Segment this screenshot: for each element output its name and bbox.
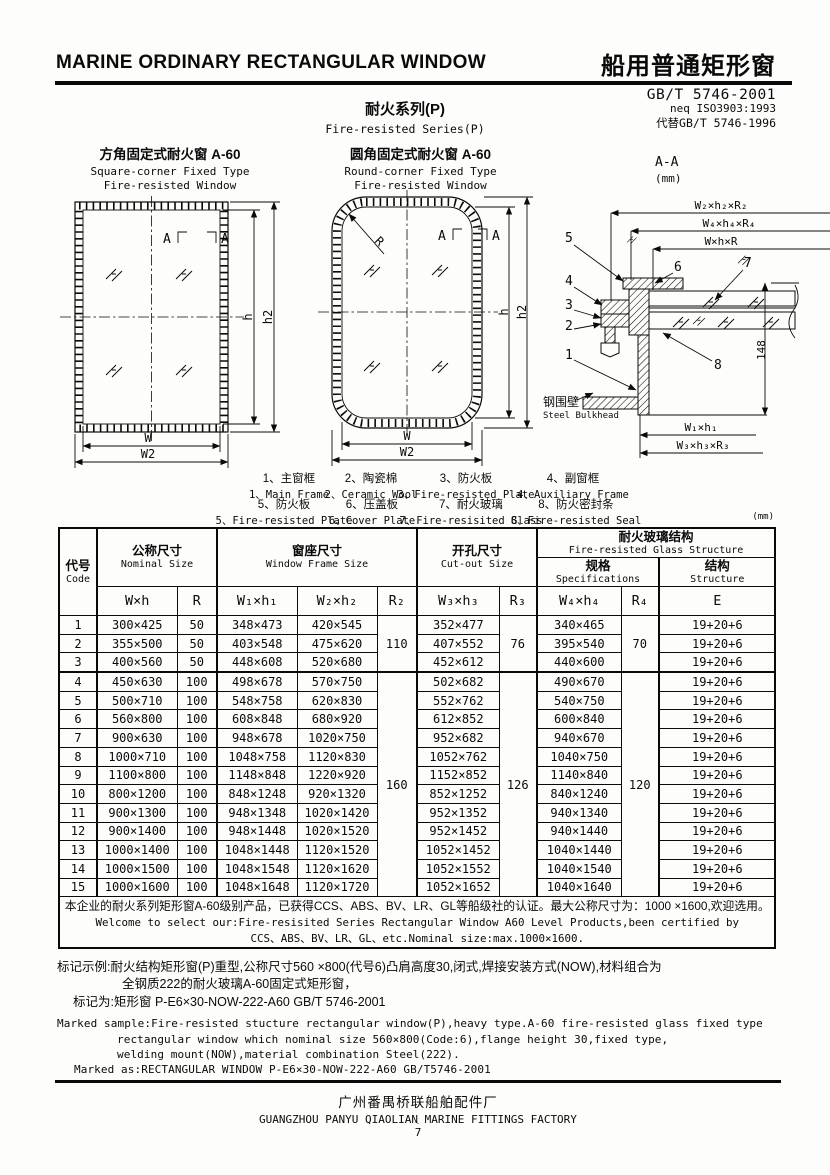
callout-2: 2: [565, 319, 573, 334]
spec-table: 代号 Code 公称尺寸 Nominal Size 窗座尺寸 Window Fr…: [58, 527, 776, 949]
dim-w2-label: W2: [400, 445, 414, 459]
table-cell: 1120×830: [297, 747, 377, 766]
table-cell: 19+20+6: [659, 766, 775, 785]
table-cell: 110: [377, 616, 417, 673]
table-cell: 952×682: [417, 729, 499, 748]
table-cell: 403×548: [217, 634, 297, 653]
dim-w3h3r3: W₃×h₃×R₃: [677, 439, 730, 452]
legend-item-zh: 1、主窗框: [249, 470, 329, 486]
marking-en-line4: Marked as:RECTANGULAR WINDOW P-E6×30-NOW…: [74, 1063, 491, 1076]
th-struct: 结构 Structure: [659, 558, 775, 587]
table-cell: 570×750: [297, 672, 377, 691]
page-number: 7: [55, 1126, 781, 1139]
callout-5: 5: [565, 231, 573, 246]
table-cell: 76: [499, 616, 537, 673]
dim-148: 148: [755, 340, 768, 360]
table-row: 6560×800100608×848680×920612×852600×8401…: [59, 710, 775, 729]
footer-rule: [55, 1080, 781, 1083]
table-cell: 348×473: [217, 616, 297, 635]
table-cell: 19+20+6: [659, 785, 775, 804]
table-cell: 1: [59, 616, 97, 635]
bolt-shaft: [605, 327, 615, 343]
table-cell: 2: [59, 634, 97, 653]
table-row: 12900×1400100948×14481020×1520952×145294…: [59, 822, 775, 841]
table-cell: 300×425: [97, 616, 177, 635]
section-drawing: A-A (mm) W₂×h₂×R₂ W₄×h₄×R₄ W×h×R: [543, 150, 830, 470]
table-cell: 420×545: [297, 616, 377, 635]
bolt-nut: [601, 343, 619, 357]
table-cell: 1000×1500: [97, 859, 177, 878]
table-cell: 400×560: [97, 653, 177, 672]
th-e: E: [659, 587, 775, 616]
table-cell: 19+20+6: [659, 729, 775, 748]
section-mark-a-right: A: [492, 229, 500, 244]
th-cutout: 开孔尺寸 Cut-out Size: [417, 528, 537, 587]
table-cell: 6: [59, 710, 97, 729]
page-title-zh: 船用普通矩形窗: [601, 46, 776, 81]
standard-number: GB/T 5746-2001: [647, 88, 776, 102]
round-window-drawing: R A A W W2 h h2: [322, 190, 552, 486]
dim-w1h1: W₁×h₁: [684, 421, 717, 434]
table-cell: 19+20+6: [659, 634, 775, 653]
table-row: 3400×56050448×608520×680452×612440×60019…: [59, 653, 775, 672]
table-cell: 8: [59, 747, 97, 766]
table-cell: 19+20+6: [659, 616, 775, 635]
table-cell: 100: [177, 710, 217, 729]
th-code: 代号 Code: [59, 528, 97, 616]
square-title-en1: Square-corner Fixed Type: [70, 165, 270, 179]
table-cell: 475×620: [297, 634, 377, 653]
table-cell: 340×465: [537, 616, 621, 635]
callout-7: 7: [744, 256, 752, 271]
th-w4h4: W₄×h₄: [537, 587, 621, 616]
section-mark-a-left: A: [163, 232, 171, 247]
table-cell: 600×840: [537, 710, 621, 729]
table-cell: 13: [59, 841, 97, 860]
marking-en-line2: rectangular window which nominal size 56…: [117, 1033, 668, 1046]
table-cell: 4: [59, 672, 97, 691]
square-title-en2: Fire-resisted Window: [70, 179, 270, 193]
table-cell: 1048×1548: [217, 859, 297, 878]
table-cell: 440×600: [537, 653, 621, 672]
table-cell: 500×710: [97, 691, 177, 710]
table-cell: 1048×1448: [217, 841, 297, 860]
dim-r-label: R: [372, 234, 388, 250]
table-cell: 948×1348: [217, 803, 297, 822]
callout-3: 3: [565, 298, 573, 313]
table-cell: 50: [177, 653, 217, 672]
table-cell: 852×1252: [417, 785, 499, 804]
marking-en-line1: Marked sample:Fire-resisted stucture rec…: [57, 1017, 763, 1030]
table-cell: 1120×1720: [297, 878, 377, 897]
legend-item-8: 8、防火密封条8、Fire-resisted Seal: [511, 496, 642, 528]
table-cell: 1020×1520: [297, 822, 377, 841]
table-cell: 940×670: [537, 729, 621, 748]
table-cell: 1000×1400: [97, 841, 177, 860]
th-frame: 窗座尺寸 Window Frame Size: [217, 528, 417, 587]
dim-h-label: h: [241, 313, 255, 320]
table-cell: 848×1248: [217, 785, 297, 804]
round-title-en1: Round-corner Fixed Type: [318, 165, 523, 179]
table-cell: 100: [177, 803, 217, 822]
table-cell: 948×1448: [217, 822, 297, 841]
table-cell: 1052×1452: [417, 841, 499, 860]
table-cell: 50: [177, 616, 217, 635]
bulkhead-bar: [638, 335, 649, 415]
table-cell: 900×1300: [97, 803, 177, 822]
bulkhead-label-zh: 钢围壁: [543, 394, 579, 409]
table-cell: 100: [177, 878, 217, 897]
marking-en-line3: welding mount(NOW),material combination …: [117, 1048, 460, 1061]
table-row: 5500×710100548×758620×830552×762540×7501…: [59, 691, 775, 710]
table-cell: 10: [59, 785, 97, 804]
table-cell: 840×1240: [537, 785, 621, 804]
table-cell: 160: [377, 672, 417, 897]
table-cell: 19+20+6: [659, 803, 775, 822]
dim-w-label: W: [144, 431, 152, 445]
table-cell: 100: [177, 785, 217, 804]
round-drawing-title: 圆角固定式耐火窗 A-60 Round-corner Fixed Type Fi…: [318, 148, 523, 193]
table-cell: 612×852: [417, 710, 499, 729]
table-row: 141000×15001001048×15481120×16201052×155…: [59, 859, 775, 878]
table-row: 4450×630100498×678570×750160502×68212649…: [59, 672, 775, 691]
bulkhead-label-en: Steel Bulkhead: [543, 411, 619, 421]
table-cell: 5: [59, 691, 97, 710]
table-cell: 502×682: [417, 672, 499, 691]
table-cell: 552×762: [417, 691, 499, 710]
table-cell: 1148×848: [217, 766, 297, 785]
th-glass: 耐火玻璃结构 Fire-resisted Glass Structure: [537, 528, 775, 558]
table-cell: 7: [59, 729, 97, 748]
series-title-zh: 耐火系列(P): [290, 98, 520, 119]
square-title-zh: 方角固定式耐火窗 A-60: [70, 148, 270, 162]
dim-h2-label: h2: [515, 305, 529, 319]
table-cell: 948×678: [217, 729, 297, 748]
table-cell: 952×1352: [417, 803, 499, 822]
table-row: 7900×630100948×6781020×750952×682940×670…: [59, 729, 775, 748]
table-cell: 100: [177, 822, 217, 841]
table-cell: 1140×840: [537, 766, 621, 785]
table-cell: 1052×762: [417, 747, 499, 766]
certification-note: 本企业的耐火系列矩形窗A-60级别产品，已获得CCS、ABS、BV、LR、GL等…: [59, 897, 775, 949]
table-cell: 490×670: [537, 672, 621, 691]
page-title-en: MARINE ORDINARY RECTANGULAR WINDOW: [56, 52, 486, 74]
table-cell: 900×1400: [97, 822, 177, 841]
table-cell: 19+20+6: [659, 822, 775, 841]
table-cell: 100: [177, 841, 217, 860]
table-cell: 1040×1440: [537, 841, 621, 860]
table-row: 131000×14001001048×14481120×15201052×145…: [59, 841, 775, 860]
table-cell: 450×630: [97, 672, 177, 691]
standard-neq: neq ISO3903:1993: [647, 102, 776, 116]
table-cell: 1052×1652: [417, 878, 499, 897]
table-cell: 1120×1520: [297, 841, 377, 860]
dim-h2-label: h2: [261, 310, 275, 324]
callout-4: 4: [565, 274, 573, 289]
th-spec: 规格 Specifications: [537, 558, 659, 587]
table-cell: 9: [59, 766, 97, 785]
table-cell: 800×1200: [97, 785, 177, 804]
th-r2: R₂: [377, 587, 417, 616]
table-cell: 14: [59, 859, 97, 878]
dim-w2-label: W2: [141, 447, 155, 461]
table-cell: 952×1452: [417, 822, 499, 841]
table-cell: 920×1320: [297, 785, 377, 804]
callout-8: 8: [714, 358, 722, 373]
standards-block: GB/T 5746-2001 neq ISO3903:1993 代替GB/T 5…: [647, 88, 776, 130]
square-window-drawing: A A W W2 h h2: [58, 196, 298, 482]
dim-h-label: h: [497, 308, 511, 315]
table-cell: 100: [177, 729, 217, 748]
table-cell: 1052×1552: [417, 859, 499, 878]
table-cell: 448×608: [217, 653, 297, 672]
callout-6: 6: [674, 260, 682, 275]
table-cell: 19+20+6: [659, 747, 775, 766]
table-cell: 1000×710: [97, 747, 177, 766]
table-cell: 19+20+6: [659, 672, 775, 691]
table-cell: 100: [177, 859, 217, 878]
glass-pane-1: [649, 291, 795, 306]
table-cell: 15: [59, 878, 97, 897]
table-cell: 452×612: [417, 653, 499, 672]
table-cell: 1040×750: [537, 747, 621, 766]
table-cell: 12: [59, 822, 97, 841]
series-heading: 耐火系列(P) Fire-resisted Series(P): [290, 98, 520, 136]
table-cell: 100: [177, 691, 217, 710]
table-cell: 1152×852: [417, 766, 499, 785]
table-row: 2355×50050403×548475×620407×552395×54019…: [59, 634, 775, 653]
table-cell: 1220×920: [297, 766, 377, 785]
cover-plate: [623, 278, 683, 289]
th-r4: R₄: [621, 587, 659, 616]
table-cell: 355×500: [97, 634, 177, 653]
aux-frame: [601, 300, 629, 314]
table-cell: 520×680: [297, 653, 377, 672]
table-cell: 126: [499, 672, 537, 897]
th-r: R: [177, 587, 217, 616]
glass-pane-2: [649, 312, 795, 329]
factory-name-zh: 广州番禺桥联船舶配件厂: [55, 1091, 781, 1111]
table-cell: 680×920: [297, 710, 377, 729]
dim-w-label: W: [403, 429, 411, 443]
marking-zh-line2: 全钢质222的耐火玻璃A-60固定式矩形窗，: [122, 973, 357, 992]
dim-w2h2r2: W₂×h₂×R₂: [695, 199, 748, 212]
table-cell: 940×1440: [537, 822, 621, 841]
table-cell: 1048×1648: [217, 878, 297, 897]
table-cell: 70: [621, 616, 659, 673]
standard-replaces: 代替GB/T 5746-1996: [647, 116, 776, 130]
table-cell: 100: [177, 747, 217, 766]
table-cell: 120: [621, 672, 659, 897]
marking-zh-line3: 标记为:矩形窗 P-E6×30-NOW-222-A60 GB/T 5746-20…: [73, 991, 386, 1010]
main-frame: [629, 289, 649, 335]
table-cell: 1048×758: [217, 747, 297, 766]
th-w2h2: W₂×h₂: [297, 587, 377, 616]
seal-block: [601, 314, 629, 327]
bulkhead-flange: [583, 397, 638, 409]
round-title-zh: 圆角固定式耐火窗 A-60: [318, 148, 523, 162]
table-cell: 608×848: [217, 710, 297, 729]
th-nominal: 公称尺寸 Nominal Size: [97, 528, 217, 587]
table-cell: 19+20+6: [659, 710, 775, 729]
series-title-en: Fire-resisted Series(P): [290, 122, 520, 136]
table-cell: 1020×750: [297, 729, 377, 748]
callout-1: 1: [565, 348, 573, 363]
th-wh: W×h: [97, 587, 177, 616]
table-cell: 19+20+6: [659, 859, 775, 878]
legend-item-zh: 8、防火密封条: [511, 496, 642, 512]
table-cell: 100: [177, 672, 217, 691]
table-cell: 620×830: [297, 691, 377, 710]
note-line-zh: 本企业的耐火系列矩形窗A-60级别产品，已获得CCS、ABS、BV、LR、GL等…: [60, 898, 775, 915]
dim-whr: W×h×R: [704, 235, 737, 248]
table-cell: 407×552: [417, 634, 499, 653]
table-cell: 19+20+6: [659, 691, 775, 710]
table-cell: 11: [59, 803, 97, 822]
table-row: 81000×7101001048×7581120×8301052×7621040…: [59, 747, 775, 766]
title-rule: [55, 81, 792, 85]
legend-item-zh: 3、防火板: [398, 470, 535, 486]
table-row: 11900×1300100948×13481020×1420952×135294…: [59, 803, 775, 822]
table-cell: 498×678: [217, 672, 297, 691]
table-cell: 19+20+6: [659, 653, 775, 672]
legend-item-zh: 4、副窗框: [517, 470, 629, 486]
table-cell: 352×477: [417, 616, 499, 635]
table-cell: 548×758: [217, 691, 297, 710]
table-cell: 50: [177, 634, 217, 653]
legend-item-en: 8、Fire-resisted Seal: [511, 513, 642, 528]
table-unit: (mm): [752, 512, 774, 522]
table-cell: 540×750: [537, 691, 621, 710]
table-cell: 1120×1620: [297, 859, 377, 878]
th-w1h1: W₁×h₁: [217, 587, 297, 616]
square-drawing-title: 方角固定式耐火窗 A-60 Square-corner Fixed Type F…: [70, 148, 270, 193]
section-mark-a-left: A: [438, 229, 446, 244]
table-cell: 940×1340: [537, 803, 621, 822]
table-cell: 1040×1540: [537, 859, 621, 878]
note-line-en2: CCS、ABS、BV、LR、GL、etc.Nominal size:max.10…: [60, 931, 775, 947]
table-row: 91100×8001001148×8481220×9201152×8521140…: [59, 766, 775, 785]
table-cell: 560×800: [97, 710, 177, 729]
th-w3h3: W₃×h₃: [417, 587, 499, 616]
table-row: 10800×1200100848×1248920×1320852×1252840…: [59, 785, 775, 804]
table-cell: 3: [59, 653, 97, 672]
th-r3: R₃: [499, 587, 537, 616]
section-mark-a-right: A: [221, 232, 229, 247]
table-cell: 19+20+6: [659, 878, 775, 897]
table-row: 1300×42550348×473420×545110352×47776340×…: [59, 616, 775, 635]
section-title: A-A: [655, 155, 679, 170]
section-unit: (mm): [655, 172, 682, 185]
table-cell: 1020×1420: [297, 803, 377, 822]
datasheet-page: MARINE ORDINARY RECTANGULAR WINDOW 船用普通矩…: [0, 0, 830, 1175]
table-cell: 900×630: [97, 729, 177, 748]
table-cell: 1000×1600: [97, 878, 177, 897]
note-line-en1: Welcome to select our:Fire-resisited Ser…: [60, 915, 775, 931]
table-cell: 19+20+6: [659, 841, 775, 860]
table-cell: 395×540: [537, 634, 621, 653]
table-row: 151000×16001001048×16481120×17201052×165…: [59, 878, 775, 897]
table-cell: 1100×800: [97, 766, 177, 785]
table-cell: 1040×1640: [537, 878, 621, 897]
table-cell: 100: [177, 766, 217, 785]
dim-w4h4r4: W₄×h₄×R₄: [703, 217, 756, 230]
